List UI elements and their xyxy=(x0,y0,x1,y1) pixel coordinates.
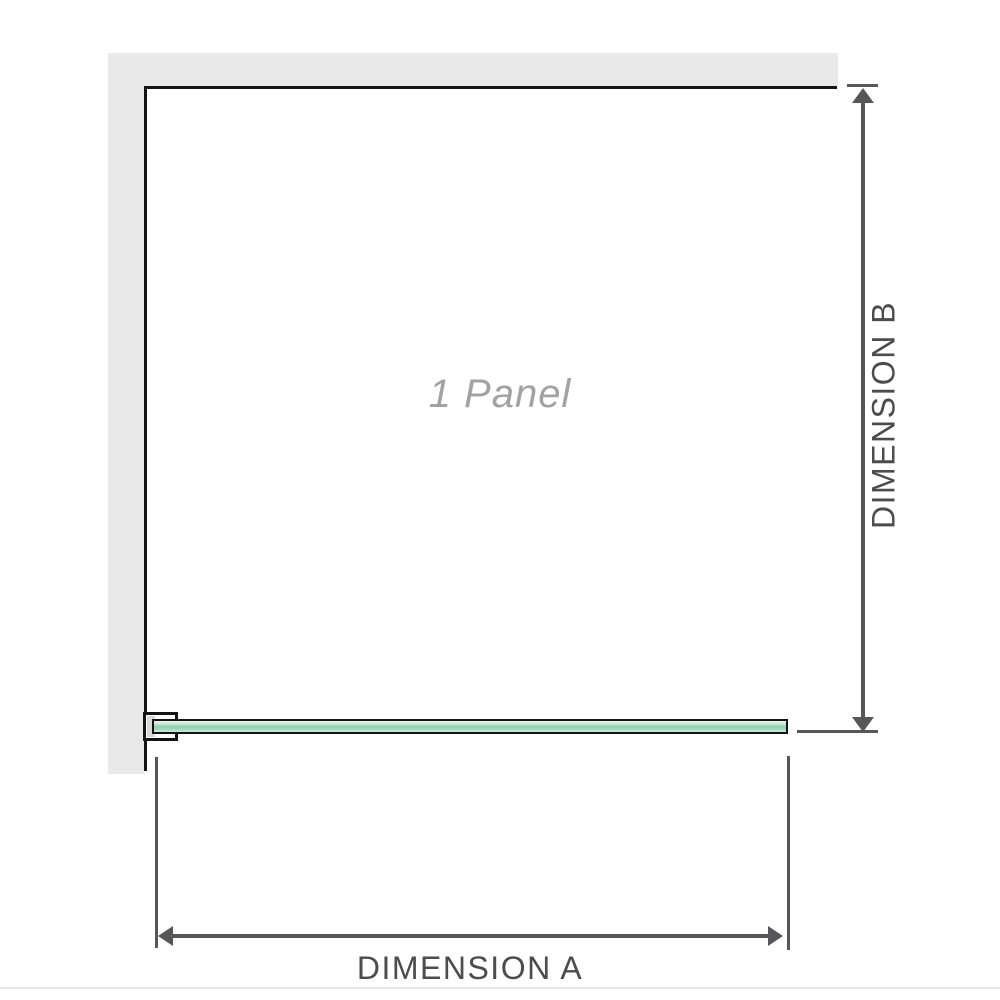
panel-outline-top xyxy=(144,86,837,89)
dimension-b-tick-top xyxy=(847,84,878,87)
arrowhead-up-icon xyxy=(852,88,874,103)
shower-panel-diagram: 1 Panel DIMENSION B DIMENSION A xyxy=(0,0,1000,1000)
panel-outline-left xyxy=(144,86,147,771)
wall-band-top xyxy=(108,53,838,87)
dimension-b-label: DIMENSION B xyxy=(866,301,903,529)
glass-panel-bar xyxy=(152,719,788,734)
dimension-a-label: DIMENSION A xyxy=(270,950,670,987)
dimension-b-line xyxy=(861,96,865,718)
footer-divider xyxy=(0,987,1000,989)
wall-band-left xyxy=(108,53,145,774)
dimension-a-extension-left xyxy=(155,757,158,948)
dimension-a-line xyxy=(171,934,769,938)
arrowhead-left-icon xyxy=(158,926,173,946)
arrowhead-down-icon xyxy=(852,717,874,732)
arrowhead-right-icon xyxy=(768,926,783,946)
dimension-a-extension-right xyxy=(787,756,790,950)
panel-count-label: 1 Panel xyxy=(300,372,700,417)
